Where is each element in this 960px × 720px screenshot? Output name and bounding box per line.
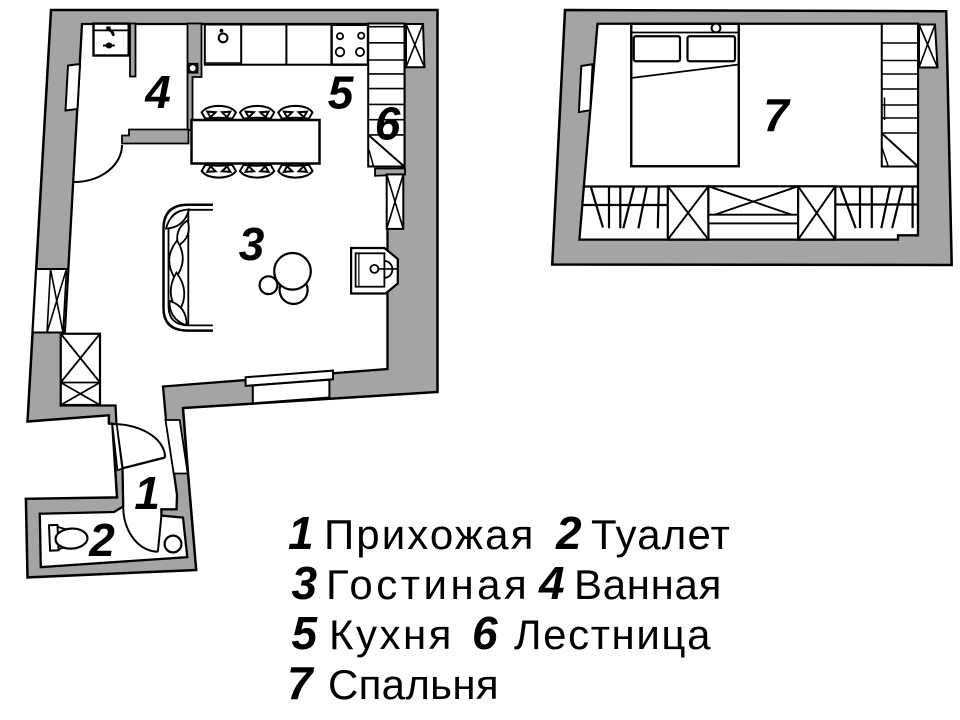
svg-text:4: 4	[144, 66, 171, 118]
svg-text:1Прихожая2Туалет: 1Прихожая2Туалет	[288, 507, 731, 559]
svg-text:7: 7	[763, 89, 791, 141]
svg-text:2: 2	[88, 514, 115, 566]
svg-text:3Гостиная4Ванная: 3Гостиная4Ванная	[292, 557, 723, 609]
svg-text:1: 1	[134, 467, 160, 519]
svg-text:5: 5	[328, 66, 355, 118]
svg-text:3: 3	[239, 218, 265, 270]
svg-text:6: 6	[375, 98, 401, 150]
